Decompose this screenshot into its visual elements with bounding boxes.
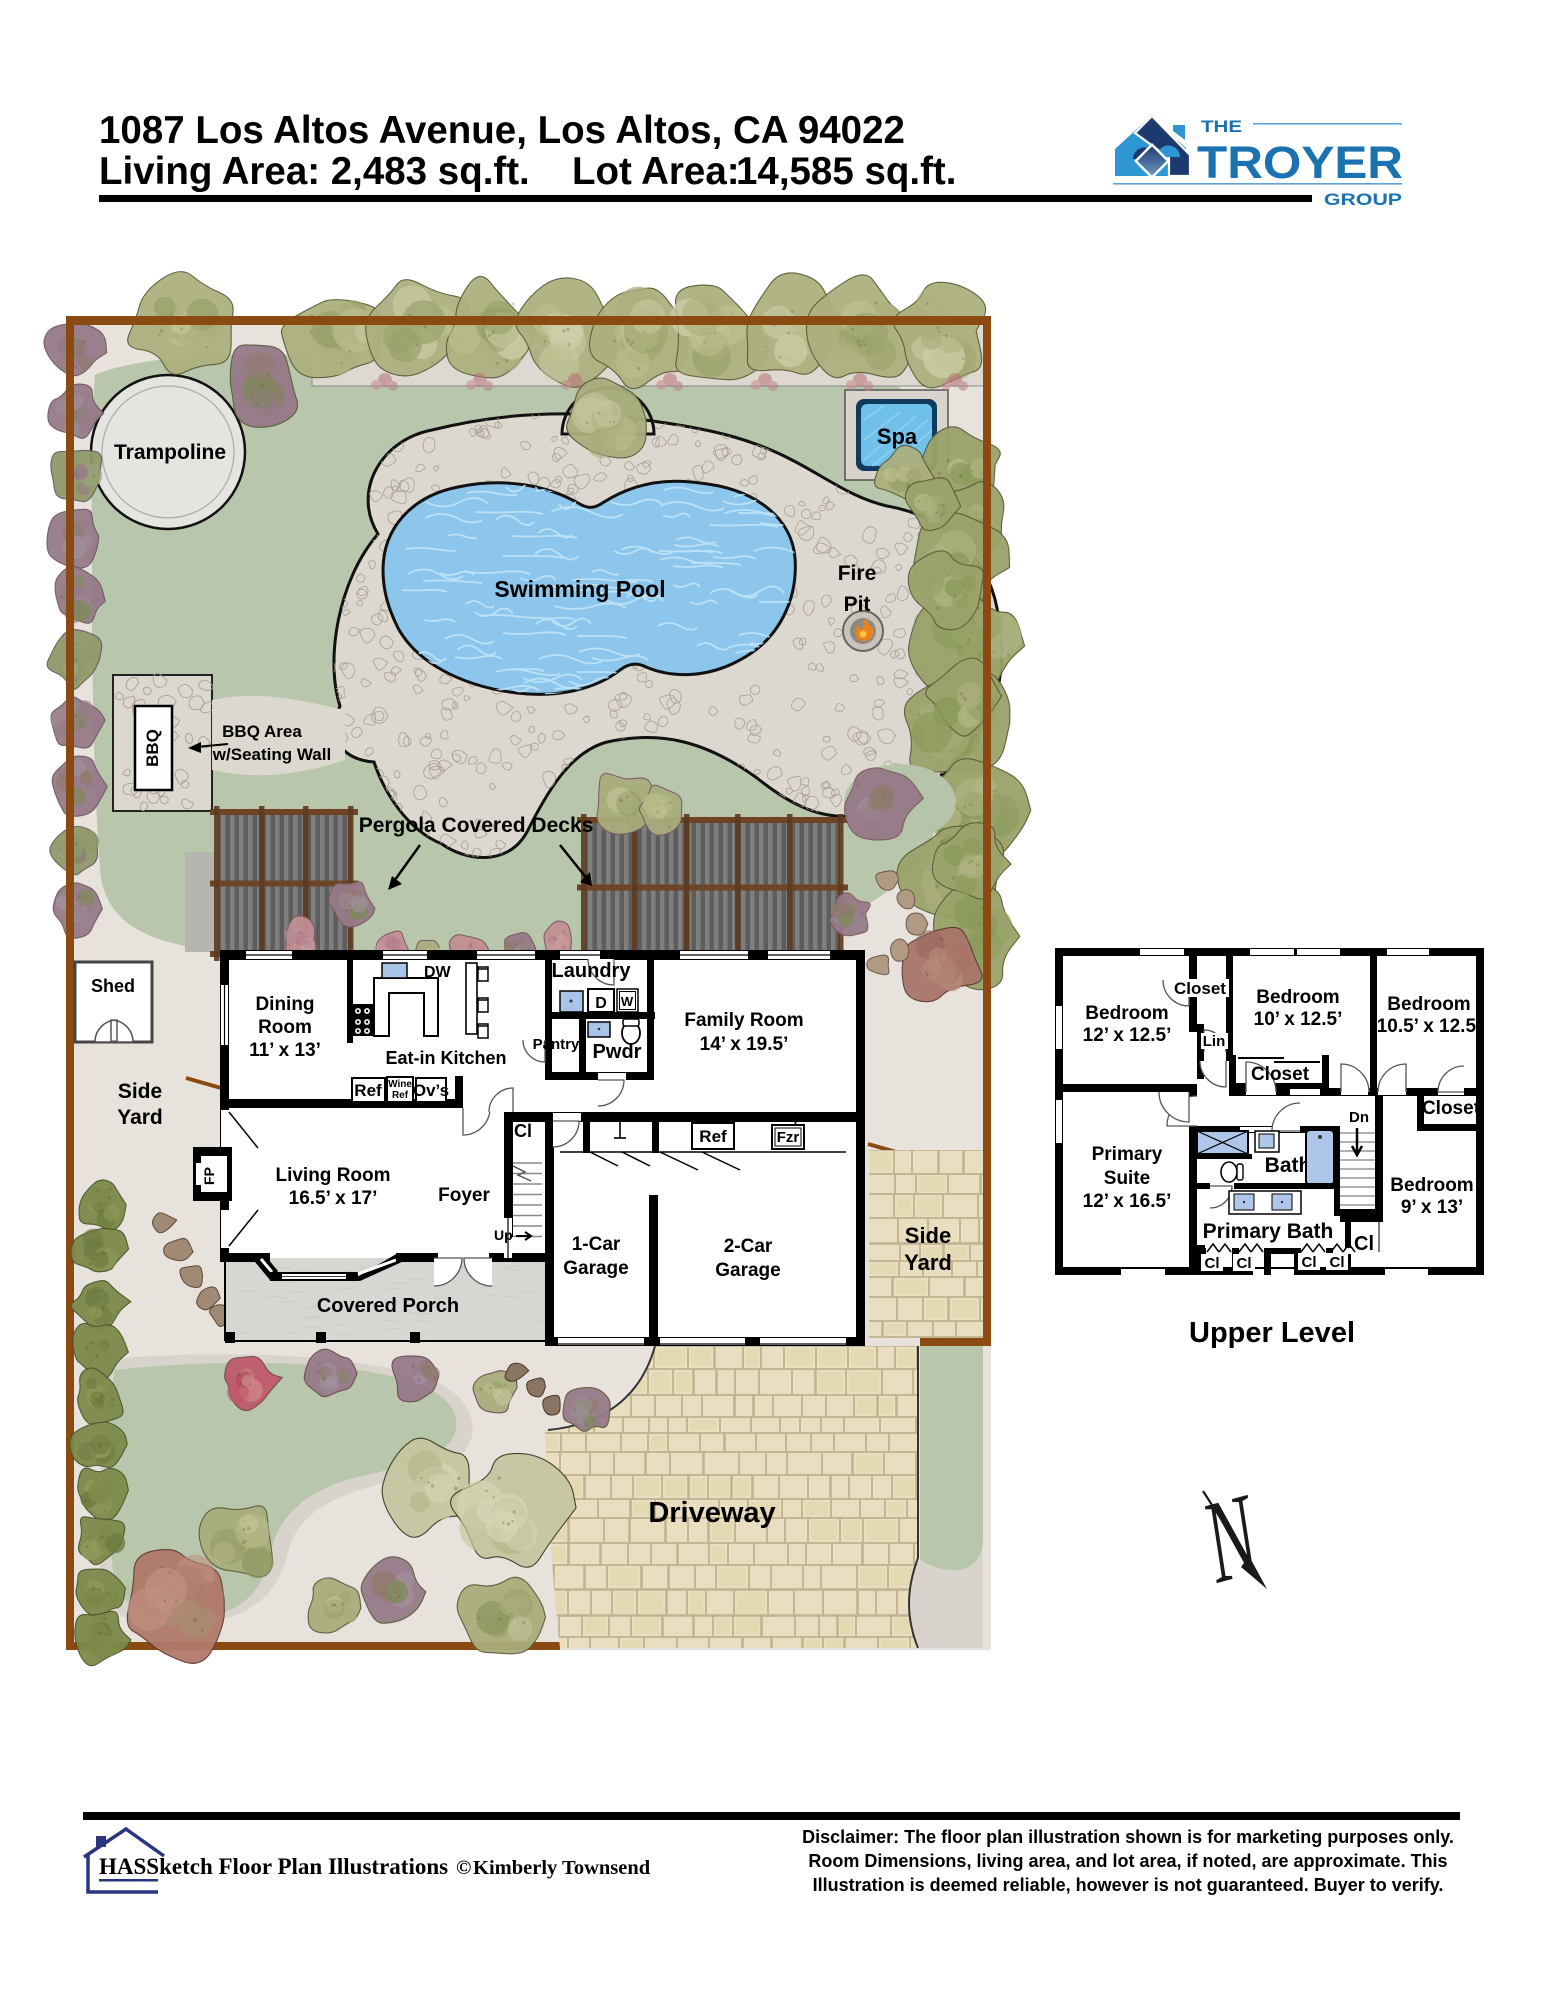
svg-text:Trampoline: Trampoline: [114, 441, 226, 464]
svg-text:Driveway: Driveway: [648, 1497, 775, 1529]
svg-text:Wine: Wine: [388, 1079, 412, 1090]
svg-text:Dining: Dining: [255, 994, 314, 1015]
svg-text:Room: Room: [258, 1017, 312, 1038]
svg-text:16.5’ x 17’: 16.5’ x 17’: [289, 1188, 378, 1209]
svg-text:Cl: Cl: [1302, 1254, 1317, 1271]
svg-text:Side: Side: [905, 1223, 951, 1248]
svg-text:12’ x 12.5’: 12’ x 12.5’: [1083, 1025, 1172, 1046]
svg-text:Cl: Cl: [1237, 1255, 1252, 1272]
svg-text:Eat-in Kitchen: Eat-in Kitchen: [385, 1048, 506, 1068]
svg-text:Lin: Lin: [1203, 1033, 1226, 1050]
svg-text:Pit: Pit: [844, 593, 871, 616]
svg-text:Primary Bath: Primary Bath: [1203, 1220, 1334, 1243]
svg-text:Laundry: Laundry: [552, 960, 632, 982]
svg-text:1087 Los Altos Avenue, Los Alt: 1087 Los Altos Avenue, Los Altos, CA 940…: [99, 109, 905, 152]
svg-text:Cl: Cl: [1354, 1233, 1374, 1255]
svg-text:Cl: Cl: [514, 1121, 532, 1141]
svg-text:Pantry: Pantry: [533, 1036, 580, 1053]
svg-text:Up: Up: [494, 1227, 513, 1243]
svg-text:BBQ Area: BBQ Area: [222, 722, 302, 741]
svg-text:2-Car: 2-Car: [724, 1236, 773, 1257]
svg-text:Fzr: Fzr: [777, 1129, 800, 1146]
svg-text:Bedroom: Bedroom: [1387, 994, 1470, 1015]
svg-text:DW: DW: [424, 964, 452, 981]
svg-text:Cl: Cl: [1330, 1254, 1345, 1271]
svg-text:GROUP: GROUP: [1324, 190, 1402, 209]
svg-text:10’ x 12.5’: 10’ x 12.5’: [1254, 1009, 1343, 1030]
svg-text:Pergola Covered Decks: Pergola Covered Decks: [359, 814, 594, 837]
svg-text:Fire: Fire: [838, 562, 877, 585]
svg-text:Lot Area:: Lot Area:: [572, 150, 740, 193]
svg-text:14’ x 19.5’: 14’ x 19.5’: [700, 1034, 789, 1055]
svg-text:Garage: Garage: [563, 1258, 628, 1279]
svg-text:Bedroom: Bedroom: [1390, 1175, 1473, 1196]
svg-text:Primary: Primary: [1092, 1144, 1163, 1165]
svg-text:Room Dimensions, living area,: Room Dimensions, living area, and lot ar…: [808, 1851, 1447, 1871]
svg-text:Ref: Ref: [354, 1081, 382, 1100]
svg-text:Bedroom: Bedroom: [1256, 987, 1339, 1008]
svg-text:Family Room: Family Room: [684, 1010, 803, 1031]
svg-text:Covered Porch: Covered Porch: [317, 1295, 459, 1317]
svg-text:FP: FP: [201, 1167, 217, 1185]
svg-text:10.5’ x 12.5’: 10.5’ x 12.5’: [1377, 1016, 1482, 1037]
svg-text:Ref: Ref: [699, 1127, 727, 1146]
svg-text:Disclaimer: The floor plan ill: Disclaimer: The floor plan illustration …: [802, 1827, 1454, 1847]
svg-text:Side: Side: [118, 1080, 162, 1103]
svg-text:Illustration is deemed reliabl: Illustration is deemed reliable, however…: [813, 1875, 1444, 1895]
svg-text:Swimming Pool: Swimming Pool: [494, 576, 665, 602]
svg-text:Ov’s: Ov’s: [413, 1081, 449, 1100]
svg-text:14,585 sq.ft.: 14,585 sq.ft.: [736, 150, 956, 193]
svg-text:Living Room: Living Room: [275, 1165, 390, 1186]
svg-text:D: D: [595, 995, 607, 1012]
svg-text:Bedroom: Bedroom: [1085, 1003, 1168, 1024]
svg-text:Closet: Closet: [1251, 1064, 1310, 1085]
svg-text:Foyer: Foyer: [438, 1185, 490, 1206]
svg-text:© Kimberly Townsend: © Kimberly Townsend: [456, 1857, 651, 1879]
svg-text:Cl: Cl: [1205, 1255, 1220, 1272]
svg-text:Yard: Yard: [117, 1106, 163, 1129]
svg-text:12’ x 16.5’: 12’ x 16.5’: [1083, 1191, 1172, 1212]
svg-text:Closet: Closet: [1174, 979, 1226, 998]
svg-text:W: W: [621, 994, 634, 1009]
svg-text:Ref: Ref: [392, 1090, 409, 1101]
svg-text:BBQ: BBQ: [143, 729, 162, 767]
svg-text:TROYER: TROYER: [1197, 137, 1403, 188]
svg-text:Dn: Dn: [1349, 1109, 1369, 1126]
svg-text:Garage: Garage: [715, 1260, 780, 1281]
svg-text:Suite: Suite: [1104, 1168, 1150, 1189]
svg-text:Pwdr: Pwdr: [593, 1041, 642, 1063]
svg-text:Closet: Closet: [1422, 1098, 1481, 1119]
svg-text:Spa: Spa: [877, 424, 918, 449]
svg-text:1-Car: 1-Car: [572, 1234, 621, 1255]
svg-text:HASSketch Floor Plan Illustrat: HASSketch Floor Plan Illustrations: [99, 1854, 448, 1879]
svg-text:Upper Level: Upper Level: [1189, 1317, 1355, 1349]
svg-text:Bath: Bath: [1265, 1154, 1312, 1177]
svg-text:Shed: Shed: [91, 976, 135, 996]
svg-text:THE: THE: [1201, 117, 1242, 136]
svg-text:Yard: Yard: [904, 1250, 952, 1275]
svg-text:Living Area: 2,483 sq.ft.: Living Area: 2,483 sq.ft.: [99, 150, 530, 193]
svg-text:w/Seating Wall: w/Seating Wall: [212, 745, 331, 764]
svg-text:9’ x 13’: 9’ x 13’: [1401, 1197, 1463, 1218]
svg-text:11’ x 13’: 11’ x 13’: [249, 1040, 321, 1061]
